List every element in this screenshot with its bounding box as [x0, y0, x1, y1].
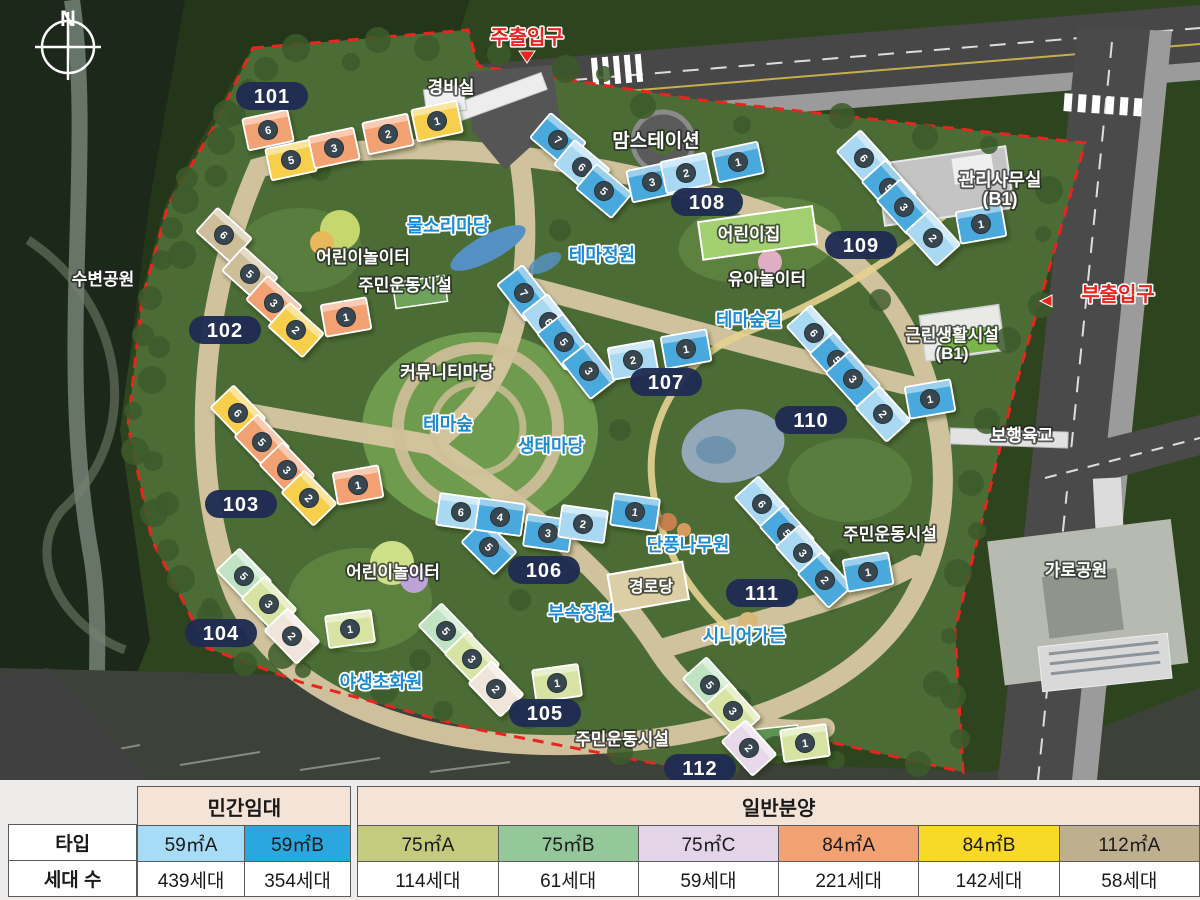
type-cell: 84㎡B	[919, 826, 1059, 862]
building-badge-106: 106	[508, 556, 580, 584]
building-badge-label: 106	[526, 560, 562, 582]
tree	[414, 35, 440, 61]
facility-label: 경비실	[428, 78, 475, 97]
facility-label: 주민운동시설	[575, 730, 669, 749]
households-cell: 58세대	[1059, 862, 1199, 897]
households-cell: 61세대	[498, 862, 638, 897]
facility-label: 테마숲	[423, 414, 473, 434]
facility-label: 보행육교	[991, 426, 1054, 445]
facility-label: 어린이놀이터	[346, 563, 440, 582]
facility-label: 테마정원	[569, 245, 635, 265]
tree	[609, 419, 631, 441]
sub-entrance-label: 부출입구	[1081, 283, 1155, 306]
facility-label: (B1)	[935, 344, 968, 363]
main-entrance-label: 주출입구	[490, 26, 564, 49]
site-plan-map: 6532165321653215321532165432176532176532…	[0, 0, 1200, 780]
compass-n-label: N	[60, 6, 76, 31]
type-cell: 59㎡B	[244, 826, 350, 862]
building-badge-label: 112	[682, 758, 717, 780]
tree	[980, 136, 998, 154]
facility-label: 단풍나무원	[647, 535, 730, 555]
type-cell: 84㎡A	[779, 826, 919, 862]
type-cell: 75㎡B	[498, 826, 638, 862]
building-badge-103: 103	[205, 490, 277, 518]
tree	[912, 124, 938, 150]
building-106-unit-2: 2	[558, 505, 608, 543]
building-badge-label: 105	[527, 703, 563, 725]
tree	[549, 219, 571, 241]
tree	[968, 522, 986, 540]
tree	[958, 470, 984, 496]
building-badge-label: 111	[745, 583, 779, 605]
facility-label: 야생초화원	[340, 672, 423, 692]
unit-type-table-strip: 타입세대 수민간임대59㎡A59㎡B439세대354세대일반분양75㎡A75㎡B…	[0, 780, 1200, 900]
building-badge-label: 108	[689, 192, 725, 214]
building-badge-label: 104	[203, 623, 239, 645]
building-badge-102: 102	[189, 316, 261, 344]
facility-label: 근린생활시설	[905, 325, 999, 345]
tree	[233, 652, 257, 676]
building-badge-111: 111	[726, 579, 798, 607]
building-badge-105: 105	[509, 699, 581, 727]
tree	[1035, 226, 1051, 242]
building-badge-label: 110	[793, 410, 828, 432]
building-badge-label: 102	[207, 320, 243, 342]
facility-label: 주민운동시설	[843, 525, 937, 544]
building-badge-110: 110	[775, 406, 847, 434]
group-table-1: 일반분양75㎡A75㎡B75㎡C84㎡A84㎡B112㎡A114세대61세대59…	[357, 786, 1200, 897]
tree	[433, 701, 453, 721]
building-102-unit-1: 1	[321, 297, 372, 337]
tree	[138, 286, 162, 310]
tree	[905, 751, 931, 777]
tree	[342, 53, 360, 71]
tree	[168, 241, 196, 269]
tree	[121, 437, 149, 465]
tree	[205, 165, 227, 187]
building-badge-108: 108	[671, 188, 743, 216]
facility-label: 커뮤니티마당	[400, 363, 494, 382]
facility-label: 테마숲길	[716, 309, 782, 330]
tree	[138, 366, 166, 394]
building-111-unit-1: 1	[843, 552, 894, 592]
building-badge-107: 107	[630, 368, 702, 396]
facility-label: 수변공원	[72, 270, 135, 289]
facility-label: 시니어가든	[703, 626, 786, 646]
building-109-unit-1: 1	[956, 204, 1007, 244]
tree	[829, 103, 855, 129]
facility-label: 유아놀이터	[728, 270, 806, 289]
tree	[941, 628, 957, 644]
households-cell: 142세대	[919, 862, 1059, 897]
building-110-unit-1: 1	[905, 379, 956, 419]
facility-label: 생태마당	[518, 436, 585, 456]
site-plan-screenshot: { "map": { "compass_label": "N", "entran…	[0, 0, 1200, 900]
tree	[552, 55, 580, 83]
tree	[365, 27, 391, 53]
tree	[161, 217, 183, 239]
facility-label: 어린이집	[718, 225, 781, 244]
tree	[944, 559, 972, 587]
facility-label: 주민운동시설	[358, 276, 452, 295]
row-header-table: 타입세대 수	[8, 824, 137, 897]
building-badge-104: 104	[185, 619, 257, 647]
tree	[201, 598, 219, 616]
tree	[207, 127, 235, 155]
tree	[869, 289, 891, 311]
facility-label: 관리사무실	[959, 170, 1042, 190]
building-badge-label: 109	[843, 235, 879, 257]
building-badge-label: 107	[648, 372, 684, 394]
row-header-households: 세대 수	[9, 861, 137, 897]
tree	[213, 100, 241, 128]
tree	[254, 57, 278, 81]
building-badge-109: 109	[825, 231, 897, 259]
facility-label: 부속정원	[548, 603, 614, 623]
tree	[155, 492, 179, 516]
group-table-0: 민간임대59㎡A59㎡B439세대354세대	[137, 786, 351, 897]
group-header: 민간임대	[138, 787, 351, 826]
tree	[167, 565, 195, 593]
building-badge-112: 112	[664, 754, 736, 780]
tree	[295, 662, 311, 678]
facility-label: (B1)	[983, 189, 1018, 209]
tree	[282, 34, 310, 62]
tree	[157, 539, 179, 561]
facility-label: 경로당	[629, 578, 673, 596]
households-cell: 439세대	[138, 862, 244, 897]
tree	[509, 589, 531, 611]
building-107-unit-1: 1	[661, 329, 712, 369]
building-106-unit-1: 1	[610, 493, 660, 531]
tree	[171, 186, 199, 214]
tree	[132, 324, 154, 346]
building-104-unit-1: 1	[325, 610, 375, 648]
group-header: 일반분양	[358, 787, 1200, 826]
building-badge-label: 103	[223, 494, 259, 516]
unit-type-table: 타입세대 수민간임대59㎡A59㎡B439세대354세대일반분양75㎡A75㎡B…	[8, 786, 1200, 897]
households-cell: 354세대	[244, 862, 350, 897]
households-cell: 59세대	[638, 862, 778, 897]
households-cell: 114세대	[358, 862, 498, 897]
type-cell: 75㎡C	[638, 826, 778, 862]
building-112-unit-1: 1	[780, 724, 830, 762]
facility-label: 물소리마당	[407, 216, 490, 236]
households-cell: 221세대	[779, 862, 919, 897]
tree	[733, 116, 751, 134]
building-badge-label: 101	[254, 86, 290, 108]
tree	[409, 649, 431, 671]
type-cell: 59㎡A	[138, 826, 244, 862]
tree	[596, 66, 612, 82]
tree	[940, 683, 966, 709]
tree	[950, 729, 970, 749]
type-cell: 112㎡A	[1059, 826, 1199, 862]
tree	[124, 402, 142, 420]
row-header-type: 타입	[9, 825, 137, 861]
facility-label: 가로공원	[1045, 561, 1108, 580]
facility-label: 어린이놀이터	[316, 248, 410, 267]
facility-label: 맘스테이션	[612, 130, 699, 152]
building-106-unit-4: 4	[475, 498, 525, 536]
type-cell: 75㎡A	[358, 826, 498, 862]
building-103-unit-1: 1	[333, 465, 384, 505]
tree	[630, 93, 656, 119]
building-badge-101: 101	[236, 82, 308, 110]
tree	[176, 167, 198, 189]
building-105-unit-1: 1	[532, 664, 582, 702]
